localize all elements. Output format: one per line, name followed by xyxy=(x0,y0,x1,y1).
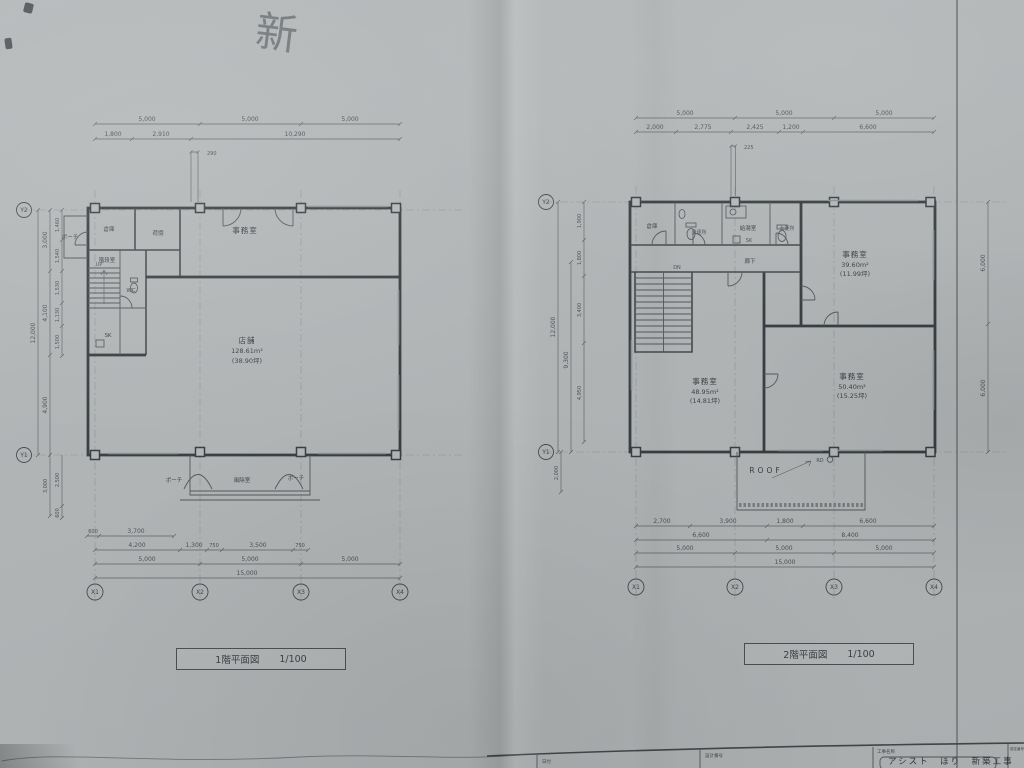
office2-tsubo: (14.81坪) xyxy=(690,397,720,405)
dim: 5,000 xyxy=(241,556,258,563)
dim: 2,000 xyxy=(646,124,663,131)
dim: 750 xyxy=(209,543,219,549)
floor2-plan-drawing: Y2 Y1 X1 X2 X3 X4 5,000 5,000 5,000 2,00… xyxy=(528,90,1024,620)
dim: 290 xyxy=(207,151,217,157)
dim: 5,000 xyxy=(775,110,792,117)
room-label-sk: SK xyxy=(746,238,753,244)
title-block-cert-label: 認定番号 xyxy=(1010,746,1024,751)
office1-tsubo: (11.99坪) xyxy=(840,270,870,278)
room-label-office: 事務室 xyxy=(232,225,258,235)
floor2-axis-x1: X1 xyxy=(632,584,640,591)
dim: 1,500 xyxy=(55,335,61,349)
floor2-heavy-walls xyxy=(764,202,935,452)
dim: 5,000 xyxy=(138,556,155,563)
room-label-women-wc: 女便所 xyxy=(779,225,794,232)
dim: 4,900 xyxy=(42,396,49,413)
dim: 10,290 xyxy=(285,131,306,138)
floor1-windows xyxy=(108,207,399,454)
floor1-columns xyxy=(91,204,401,460)
dim: 1,540 xyxy=(55,249,61,263)
dim: 1,300 xyxy=(185,542,202,549)
dim: 6,600 xyxy=(692,532,709,539)
floor2-axis-x2: X2 xyxy=(731,584,739,591)
floor2-caption-title: 2階平面図 xyxy=(783,647,827,661)
room-label-shop: 店舗 xyxy=(239,335,256,345)
dim: 5,000 xyxy=(138,116,155,123)
floor1-axis-x4: X4 xyxy=(396,589,404,596)
room-label-porch-left: ポーチ xyxy=(166,477,183,484)
ink-mark-icon xyxy=(23,2,34,14)
dim: 5,000 xyxy=(341,116,358,123)
floor1-axis-y2: Y2 xyxy=(19,207,28,214)
dim: 15,000 xyxy=(237,570,258,577)
dim: 750 xyxy=(295,543,305,549)
dim: 1,460 xyxy=(55,218,61,232)
room-label-windbreak: 風除室 xyxy=(234,476,251,484)
dim: 2,700 xyxy=(653,518,670,525)
roof-drain-symbol xyxy=(827,457,833,463)
floor1-axis-x3: X3 xyxy=(297,589,305,596)
floor1-stair-arrow xyxy=(101,270,107,304)
shop-tsubo: (38.90坪) xyxy=(232,357,262,365)
dim: 5,000 xyxy=(676,545,693,552)
floor1-axis-x2: X2 xyxy=(196,589,204,596)
floor2-axis-x4: X4 xyxy=(930,584,938,591)
room-label-loading: 荷捌 xyxy=(152,229,164,237)
dim: 5,000 xyxy=(341,556,358,563)
floor2-interior-walls xyxy=(630,245,801,272)
office3-area: 50.40m² xyxy=(838,383,866,391)
dim: 600 xyxy=(88,529,98,535)
floor1-interior-walls xyxy=(88,208,180,355)
title-block-design-no-label: 設計番号 xyxy=(705,752,723,759)
room-label-men-wc: 男便所 xyxy=(691,229,706,236)
dim: 225 xyxy=(744,145,754,151)
room-label-porch-side: ポーチ xyxy=(62,234,79,241)
roof-label: ROOF xyxy=(749,466,782,475)
dim: 3,400 xyxy=(577,303,583,317)
title-block: 日付 設計番号 工事名称 アシスト ほり 新築工事 認定番号 xyxy=(0,730,1024,768)
dim: 8,400 xyxy=(841,532,858,539)
sheet-edge-curve xyxy=(2,755,520,761)
floor1-caption-title: 1階平面図 xyxy=(215,652,259,666)
floor1-caption-box: 1階平面図 1/100 xyxy=(176,648,346,670)
ink-mark-icon xyxy=(4,38,12,50)
dim: 2,910 xyxy=(152,131,169,138)
office2-area: 48.95m² xyxy=(691,388,719,396)
room-label-sk: SK xyxy=(104,333,111,339)
floor1-axis-circles xyxy=(17,203,409,601)
dim: 3,000 xyxy=(43,479,49,493)
floor2-axis-circles xyxy=(539,195,943,596)
handwritten-mark: 新 xyxy=(252,0,303,63)
room-label-office3: 事務室 xyxy=(839,371,865,381)
dim: 6,600 xyxy=(859,124,876,131)
room-label-kitchenette: 給湯室 xyxy=(740,224,757,232)
floor2-roof-outline xyxy=(737,452,865,510)
floor1-dim-lines-top xyxy=(93,122,402,202)
title-block-project-label: 工事名称 xyxy=(877,748,895,755)
floor2-caption-scale: 1/100 xyxy=(847,649,874,660)
dim: 5,000 xyxy=(676,110,693,117)
dim: 6,600 xyxy=(859,518,876,525)
dim: 3,900 xyxy=(719,518,736,525)
floor2-dim-lines-right xyxy=(986,200,990,454)
dim: 2,425 xyxy=(746,124,763,131)
dim: 3,500 xyxy=(249,542,266,549)
dim: 2,000 xyxy=(554,466,560,480)
dim: 4,200 xyxy=(128,542,145,549)
title-block-project-name: アシスト ほり 新築工事 xyxy=(888,756,1014,767)
dim: 15,000 xyxy=(775,559,796,566)
dim: 12,000 xyxy=(550,316,557,337)
floor1-caption-scale: 1/100 xyxy=(279,654,306,665)
dim: 5,000 xyxy=(875,110,892,117)
dim: 1,800 xyxy=(776,518,793,525)
floor2-axis-y1: Y1 xyxy=(541,449,550,456)
room-label-wc: WC xyxy=(126,288,135,294)
dim: 4,950 xyxy=(577,386,583,400)
dim: 1,900 xyxy=(577,214,583,228)
dim: 4,100 xyxy=(42,304,49,321)
dim: 5,000 xyxy=(775,545,792,552)
floor2-axis-y2: Y2 xyxy=(541,199,550,206)
floor2-door-arcs xyxy=(652,231,838,388)
floor2-fixtures xyxy=(679,206,787,243)
dim: 6,000 xyxy=(980,379,987,396)
floor2-dim-lines-left xyxy=(556,200,586,494)
dim: 1,800 xyxy=(104,131,121,138)
dim: 3,700 xyxy=(127,528,144,535)
floor1-axis-x1: X1 xyxy=(91,589,99,596)
dim: 1,800 xyxy=(577,251,583,265)
dim: 1,530 xyxy=(55,281,61,295)
dim: 12,000 xyxy=(30,322,37,343)
room-label-storage: 倉庫 xyxy=(646,222,658,230)
roof-drain-label: RD xyxy=(816,458,823,464)
room-label-office1: 事務室 xyxy=(842,249,868,259)
dim: 3,000 xyxy=(42,231,49,248)
dim: 1,130 xyxy=(55,308,61,322)
shop-area: 128.61m² xyxy=(231,347,263,355)
title-block-border xyxy=(487,743,1024,756)
room-label-corridor: 廊下 xyxy=(744,257,756,265)
stair-dn-label: DN xyxy=(673,265,681,271)
dim: 600 xyxy=(55,508,61,518)
floor2-axis-x3: X3 xyxy=(830,584,838,591)
room-label-office2: 事務室 xyxy=(692,376,718,386)
floor2-caption-box: 2階平面図 1/100 xyxy=(744,643,914,665)
floor1-plan-drawing: Y2 Y1 X1 X2 X3 X4 5,000 5,000 5,000 1,80… xyxy=(8,90,478,620)
blueprint-photo: Y2 Y1 X1 X2 X3 X4 5,000 5,000 5,000 1,80… xyxy=(0,0,1024,768)
sheet-right-edge xyxy=(956,0,958,768)
title-block-date-label: 日付 xyxy=(542,758,551,765)
dim: 6,000 xyxy=(980,254,987,271)
room-label-porch-right: ポーチ xyxy=(288,475,305,482)
dim: 5,000 xyxy=(241,116,258,123)
dim: 2,775 xyxy=(694,124,711,131)
room-label-storage: 倉庫 xyxy=(103,225,115,233)
floor2-grid-lines xyxy=(544,186,1008,600)
dim: 9,300 xyxy=(563,351,570,368)
floor1-axis-y1: Y1 xyxy=(19,452,28,459)
dim: 1,200 xyxy=(782,124,799,131)
dim: 5,000 xyxy=(875,545,892,552)
stair-up-label: UP xyxy=(96,262,103,268)
office1-area: 39.60m² xyxy=(841,261,869,269)
floor2-stair-treads xyxy=(635,272,692,352)
office3-tsubo: (15.25坪) xyxy=(837,392,867,400)
dim: 2,500 xyxy=(55,473,61,487)
